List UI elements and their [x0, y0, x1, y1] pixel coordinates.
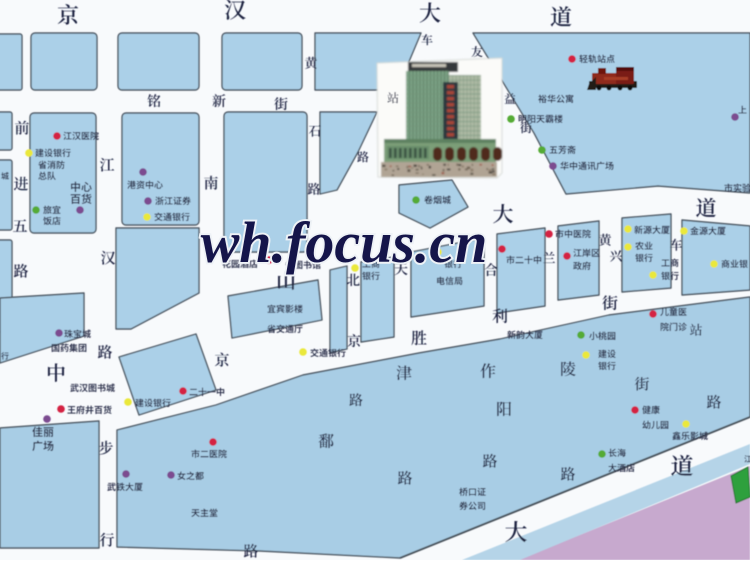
- svg-text:wh.focus.cn: wh.focus.cn: [201, 210, 488, 275]
